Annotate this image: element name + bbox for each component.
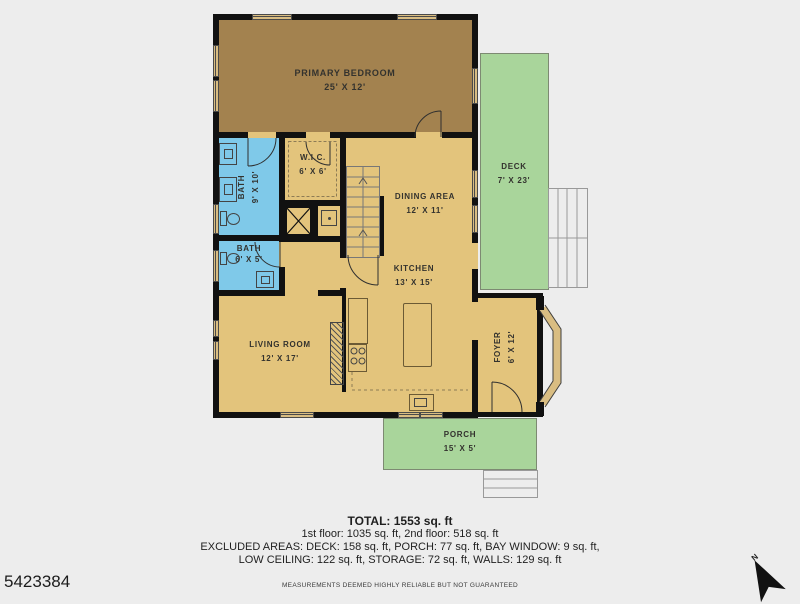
room-name: DECK xyxy=(498,160,531,174)
room-name: BATH xyxy=(235,171,249,204)
sink-basin xyxy=(224,149,233,159)
disclaimer-text: MEASUREMENTS DEEMED HIGHLY RELIABLE BUT … xyxy=(0,582,800,589)
kitchen-foyer-opening xyxy=(472,302,478,340)
window xyxy=(213,80,219,112)
room-dims: 7' X 23' xyxy=(498,174,531,188)
room-dims: 9' X 10' xyxy=(249,171,263,204)
porch-steps xyxy=(483,471,538,498)
window xyxy=(280,412,314,418)
bath2-label: BATH 6' X 5' xyxy=(235,243,262,265)
area-summary: TOTAL: 1553 sq. ft 1st floor: 1035 sq. f… xyxy=(0,514,800,567)
bath2-sink xyxy=(256,271,274,288)
kitchen-island xyxy=(403,303,432,367)
room-name: BATH xyxy=(235,243,262,254)
room-dims: 6' X 5' xyxy=(235,254,262,265)
room-dims: 6' X 6' xyxy=(299,165,326,179)
wic-label: W.I.C. 6' X 6' xyxy=(299,151,326,179)
room-dims: 12' X 11' xyxy=(395,204,455,218)
sink-basin xyxy=(261,276,270,284)
window xyxy=(472,68,478,104)
bath1-label: BATH 9' X 10' xyxy=(235,171,263,204)
excluded-areas-text2: LOW CEILING: 122 sq. ft, STORAGE: 72 sq.… xyxy=(0,554,800,567)
porch-label: PORCH 15' X 5' xyxy=(444,428,477,456)
shower-stall xyxy=(285,206,312,236)
sink-basin xyxy=(224,184,233,195)
bedroom-door-opening xyxy=(416,132,442,138)
toilet-bowl xyxy=(227,213,240,225)
living-room-label: LIVING ROOM 12' X 17' xyxy=(249,338,310,366)
window xyxy=(213,341,219,360)
room-dims: 15' X 5' xyxy=(444,442,477,456)
room-name: PORCH xyxy=(444,428,477,442)
toilet-tank xyxy=(220,252,227,265)
deck-label: DECK 7' X 23' xyxy=(498,160,531,188)
bath1-door-opening xyxy=(248,132,276,138)
stove xyxy=(348,344,367,372)
plan-id: 5423384 xyxy=(4,572,70,592)
hall-living-opening xyxy=(285,290,318,296)
room-dims: 12' X 17' xyxy=(249,352,310,366)
window xyxy=(472,170,478,198)
stair-door-opening xyxy=(340,258,346,288)
kitchen-counter xyxy=(348,298,368,344)
window xyxy=(472,205,478,233)
wall-segment xyxy=(378,196,384,256)
appliance-dot xyxy=(328,217,331,220)
kitchen-sink xyxy=(409,394,434,411)
room-name: DINING AREA xyxy=(395,190,455,204)
kitchen-label: KITCHEN 13' X 15' xyxy=(394,262,434,290)
floors-area-text: 1st floor: 1035 sq. ft, 2nd floor: 518 s… xyxy=(0,528,800,541)
window xyxy=(213,204,219,234)
toilet-tank xyxy=(220,211,227,226)
foyer-label: FOYER 6' X 12' xyxy=(491,331,519,364)
chimney xyxy=(330,322,344,385)
window xyxy=(213,250,219,282)
floorplan-page: { "plan_id": "5423384", "compass": { "la… xyxy=(0,0,800,600)
storage-appliance xyxy=(321,210,337,226)
room-name: FOYER xyxy=(491,331,505,364)
primary-bedroom-label: PRIMARY BEDROOM 25' X 12' xyxy=(294,66,395,94)
room-dims: 25' X 12' xyxy=(294,80,395,94)
window xyxy=(213,320,219,337)
hall-floor xyxy=(285,242,340,290)
excluded-areas-text: EXCLUDED AREAS: DECK: 158 sq. ft, PORCH:… xyxy=(0,541,800,554)
sink-basin xyxy=(414,398,427,407)
window xyxy=(252,14,292,20)
bath1-vanity-sink xyxy=(219,143,237,165)
dining-label: DINING AREA 12' X 11' xyxy=(395,190,455,218)
window xyxy=(397,14,437,20)
room-name: KITCHEN xyxy=(394,262,434,276)
room-dims: 6' X 12' xyxy=(505,331,519,364)
room-dims: 13' X 15' xyxy=(394,276,434,290)
room-name: LIVING ROOM xyxy=(249,338,310,352)
deck-door-opening xyxy=(472,243,478,269)
window-divider xyxy=(419,412,421,418)
wic-door-opening xyxy=(306,132,330,138)
room-name: PRIMARY BEDROOM xyxy=(294,66,395,80)
bath2-door-opening xyxy=(279,242,285,267)
window xyxy=(213,45,219,77)
room-name: W.I.C. xyxy=(299,151,326,165)
deck-stairs xyxy=(548,188,588,288)
living-kitchen-opening xyxy=(342,392,346,412)
total-area-text: TOTAL: 1553 sq. ft xyxy=(0,514,800,528)
